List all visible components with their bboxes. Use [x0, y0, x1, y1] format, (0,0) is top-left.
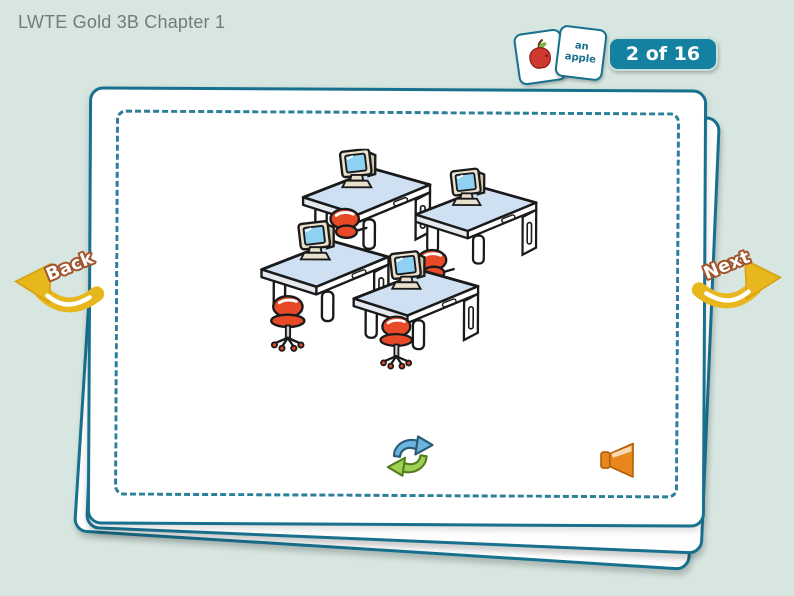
play-audio-button[interactable]	[596, 440, 644, 480]
back-button[interactable]: Back	[14, 242, 102, 314]
flashcard-main[interactable]	[87, 86, 707, 527]
replay-audio-button[interactable]	[386, 433, 434, 479]
back-button-label: Back	[43, 248, 97, 285]
preview-word-line2: apple	[564, 51, 597, 67]
apple-icon	[520, 34, 559, 79]
next-button[interactable]: Next	[694, 238, 782, 310]
flashcard-illustration	[259, 148, 544, 401]
card-counter-badge: 2 of 16	[608, 37, 718, 71]
computer-desks-illustration	[259, 148, 544, 401]
speaker-icon	[596, 468, 644, 483]
refresh-icon	[386, 467, 434, 482]
app-title: LWTE Gold 3B Chapter 1	[18, 12, 225, 33]
preview-word-card[interactable]: an apple	[554, 24, 608, 81]
app-screen: LWTE Gold 3B Chapter 1 an apple 2 of 16	[0, 0, 794, 596]
